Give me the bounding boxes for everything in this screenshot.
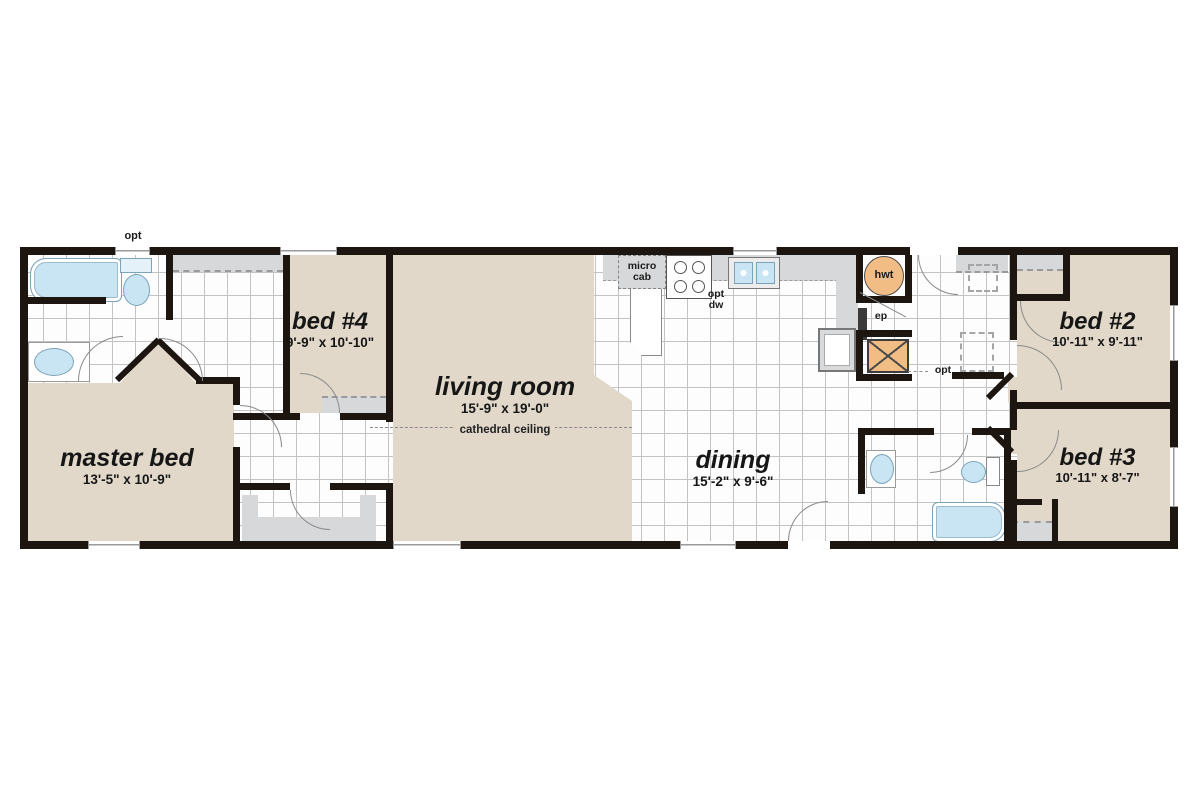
bed3-window: [1170, 447, 1178, 507]
toilet-tank: [986, 457, 1000, 486]
kitchen-window: [733, 247, 777, 255]
microwave-cabinet: micro cab: [618, 255, 666, 289]
ep-label: ep: [869, 311, 893, 322]
hwt-label: hwt: [875, 270, 894, 282]
wall: [1010, 390, 1017, 430]
optional-window: [115, 247, 150, 255]
master-bed-window: [88, 541, 140, 549]
toilet-icon: [961, 461, 986, 483]
living-room-window: [393, 541, 461, 549]
sink-basin: [734, 262, 753, 284]
walkin-closet-shelf: [173, 255, 283, 272]
door-arc: [160, 338, 203, 381]
wall: [858, 428, 934, 435]
bathtub-icon: [30, 258, 122, 302]
optional-appliance-outline: [960, 332, 994, 372]
bed3-closet-shelf: [1012, 521, 1052, 541]
master-door-arc: [240, 405, 282, 447]
back-door: [910, 247, 958, 255]
sink-basin: [756, 262, 775, 284]
back-door-arc: [918, 255, 958, 295]
wall: [952, 372, 1004, 379]
floor-plan: micro cab hwt ep: [20, 247, 1178, 549]
exterior-wall-bottom: [20, 541, 1178, 549]
wall: [386, 483, 393, 549]
front-door-arc: [788, 501, 828, 541]
kitchen-sink-icon: [728, 257, 780, 289]
bed2-closet-shelf: [1017, 255, 1063, 271]
room-label-dining: dining 15'-2" x 9'-6": [653, 447, 813, 491]
wall: [856, 330, 863, 380]
opt-dw-label: opt dw: [696, 289, 736, 311]
water-heater-icon: hwt: [864, 256, 904, 296]
stove-burner: [692, 261, 705, 274]
toilet-tank: [120, 258, 152, 273]
floor-plan-page: micro cab hwt ep: [0, 0, 1200, 800]
opt-window-label: opt: [113, 231, 153, 243]
wall: [856, 296, 912, 303]
bathroom-sink-icon: [34, 348, 74, 376]
bed2-window: [1170, 305, 1178, 361]
wall: [330, 483, 386, 490]
optional-appliance-outline: [968, 264, 998, 292]
cathedral-ceiling-line: [370, 427, 632, 428]
living-room-floor: [393, 255, 632, 541]
wall: [1017, 294, 1069, 301]
opt-dw-line2: dw: [696, 300, 736, 311]
wall: [1010, 247, 1017, 340]
dining-window: [680, 541, 736, 549]
bed4-window: [280, 247, 337, 255]
wall: [24, 297, 106, 304]
wall: [233, 483, 290, 490]
toilet-icon: [123, 274, 150, 306]
bathtub-icon: [932, 502, 1006, 542]
front-door: [788, 541, 830, 549]
micro-cab-label-line2: cab: [633, 272, 651, 283]
wall: [1012, 499, 1042, 505]
wall: [283, 247, 290, 419]
wall: [233, 447, 240, 549]
wall: [858, 428, 865, 494]
washer-icon: [867, 339, 909, 373]
bathroom-sink-icon: [870, 454, 894, 484]
wall: [386, 247, 393, 422]
wall: [340, 413, 386, 420]
wall: [856, 330, 912, 337]
kitchen-counter-return: [836, 280, 858, 330]
stove-burner: [674, 261, 687, 274]
wall: [1010, 402, 1178, 409]
wall: [166, 247, 173, 320]
exterior-wall-top: [20, 247, 1178, 255]
wall: [1063, 255, 1070, 301]
refrigerator-icon: [818, 328, 856, 372]
room-dims: 15'-2" x 9'-6": [653, 473, 813, 491]
opt-leader-line: [908, 371, 928, 372]
wall: [856, 374, 912, 381]
exterior-wall-left: [20, 247, 28, 549]
room-name: dining: [653, 447, 813, 473]
stove-burner: [674, 280, 687, 293]
